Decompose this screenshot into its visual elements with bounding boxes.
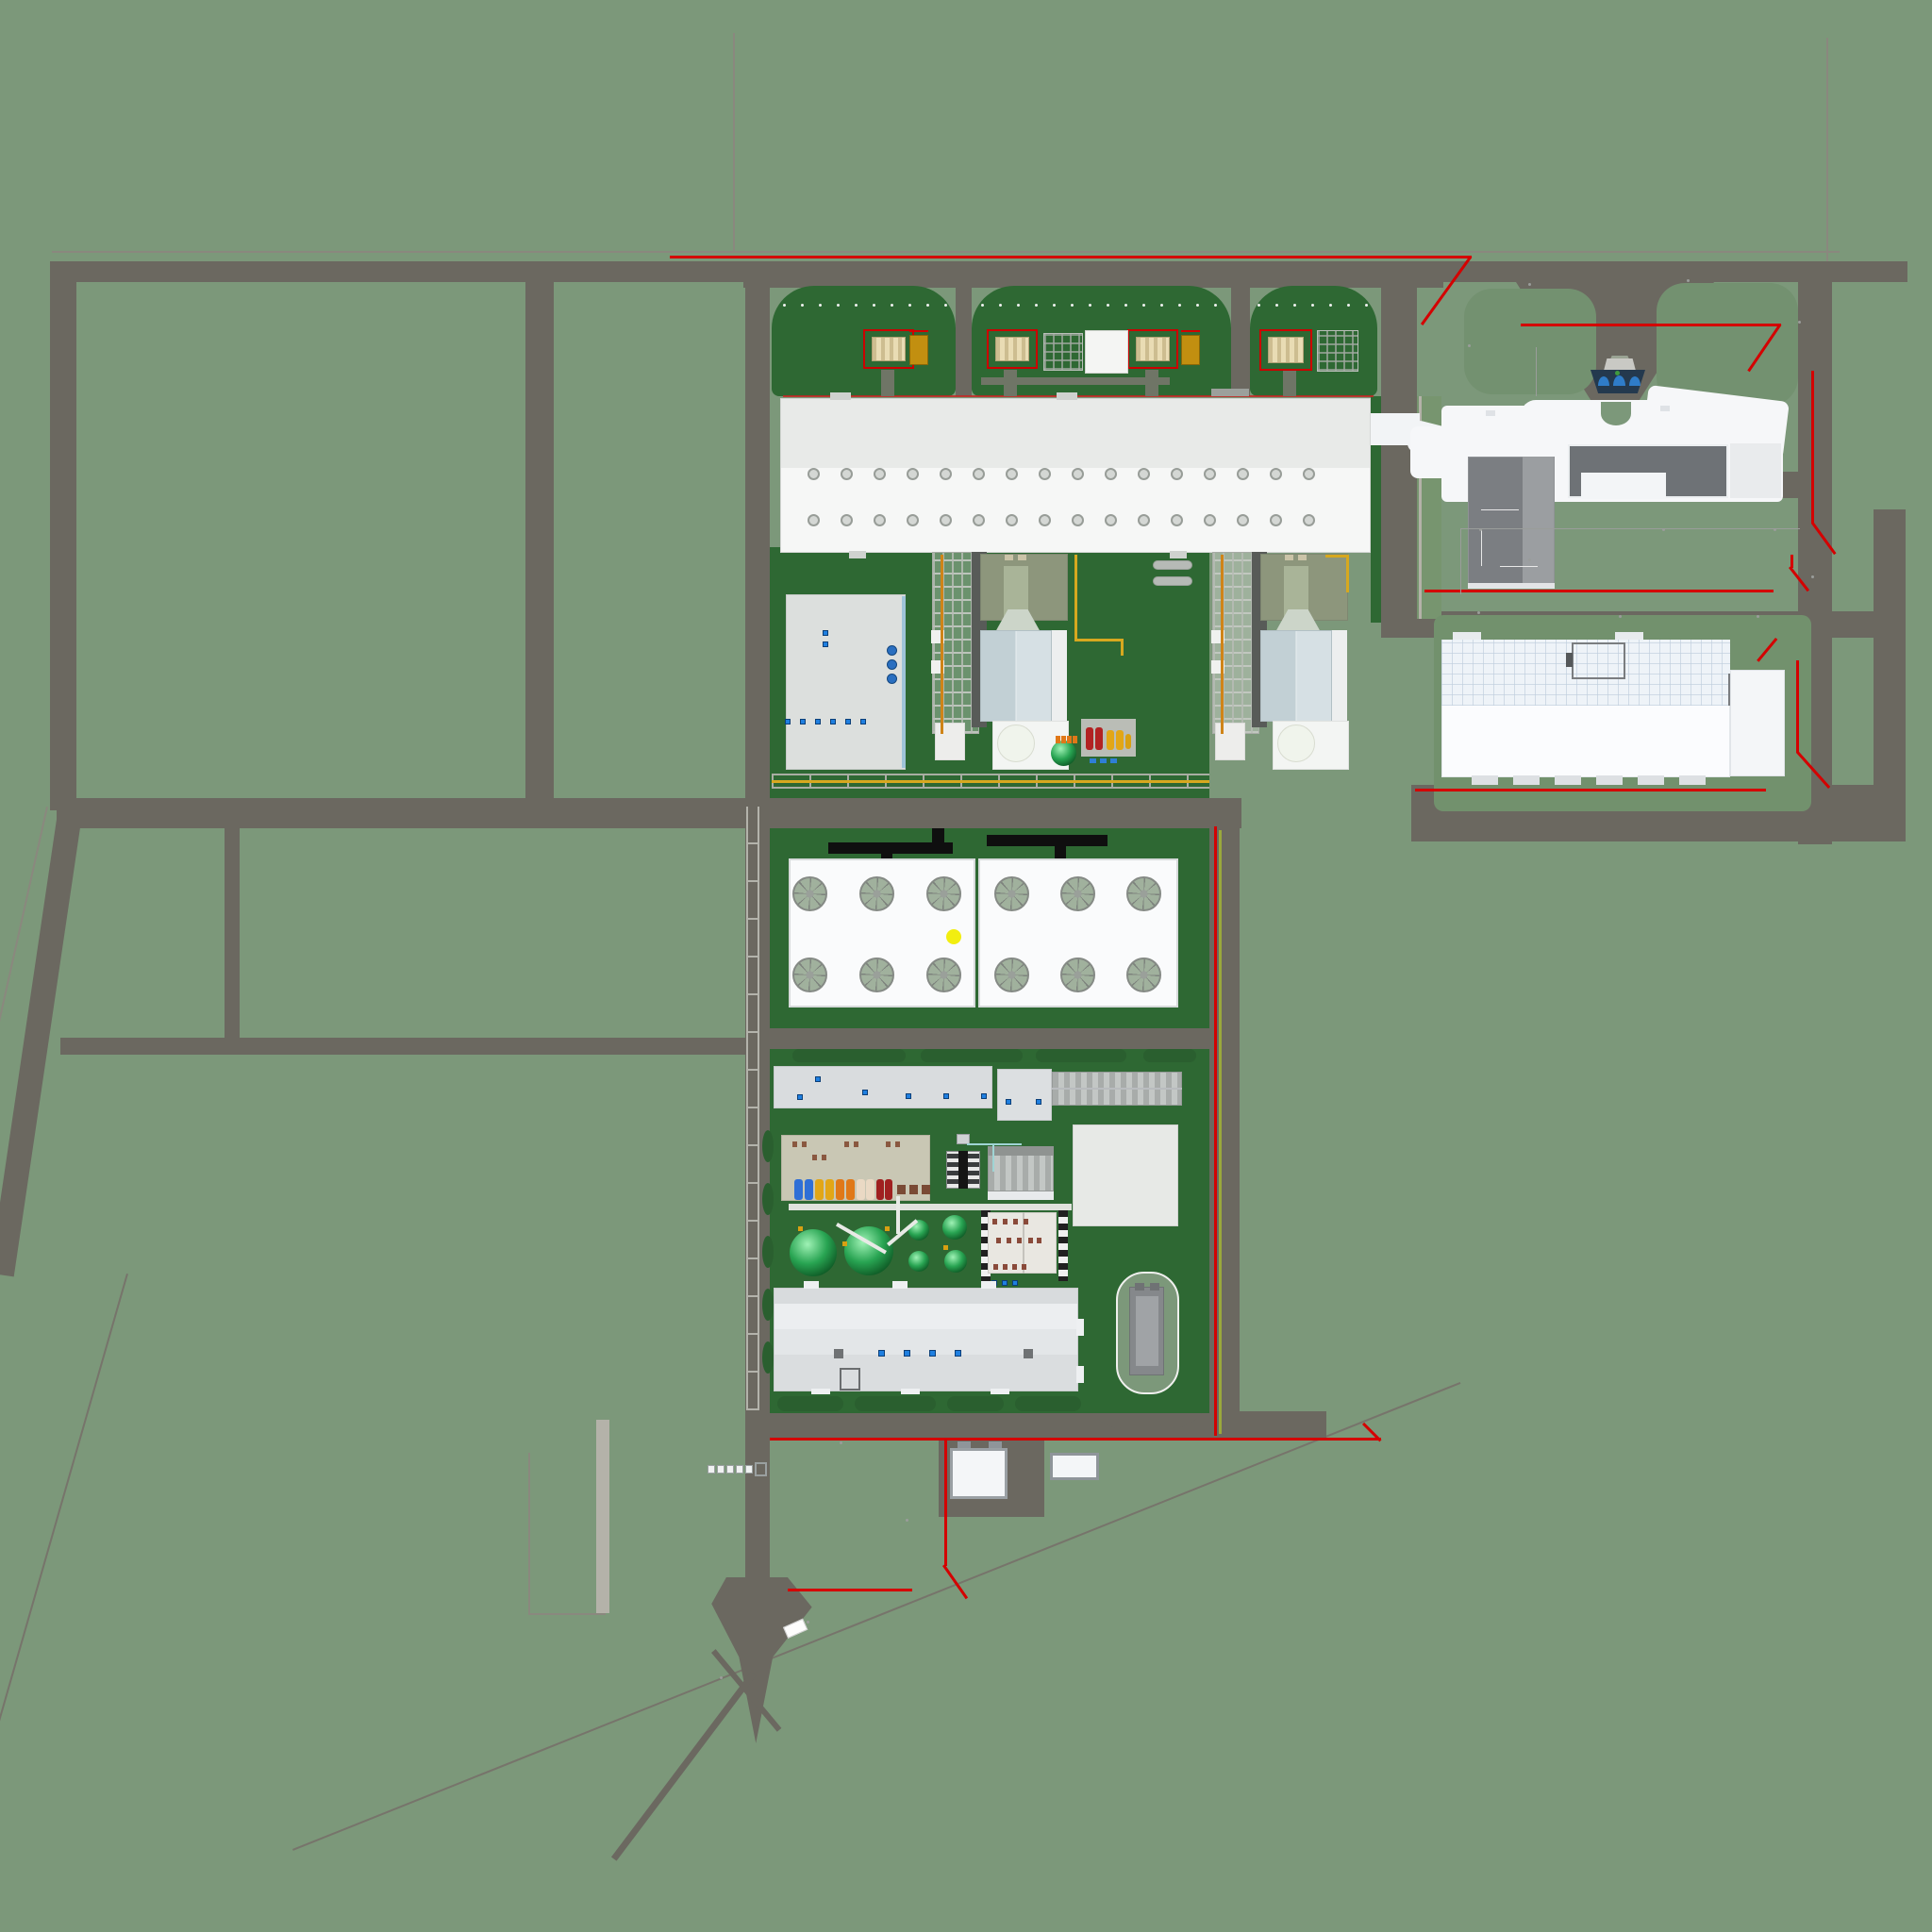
admin-roof-line bbox=[1481, 528, 1482, 566]
post-brown bbox=[1028, 1238, 1033, 1243]
admin-roof-line bbox=[1500, 566, 1538, 567]
switchgear-lattice bbox=[1317, 330, 1358, 372]
fence-red-warehouse-east bbox=[1796, 660, 1799, 753]
bollard-row-bay2 bbox=[1089, 304, 1091, 307]
sphere-tank-green bbox=[1051, 741, 1076, 766]
tank-amber bbox=[1116, 730, 1124, 750]
bin-brown bbox=[909, 1185, 918, 1194]
admin-arch-opening bbox=[1601, 402, 1631, 425]
turbine-hall-roof-tab bbox=[830, 392, 851, 400]
bin-brown bbox=[922, 1185, 930, 1194]
roof-vent bbox=[1072, 514, 1084, 526]
sphere-tank-blue bbox=[887, 645, 897, 656]
fence-red-south-inner bbox=[944, 1438, 947, 1566]
pipe-orange bbox=[941, 555, 943, 734]
roof-dot-blue bbox=[860, 719, 866, 724]
pipe-yellow bbox=[1325, 555, 1348, 558]
sphere-tank-blue bbox=[887, 659, 897, 670]
lamp-post bbox=[1468, 344, 1471, 347]
tank-red bbox=[1095, 727, 1103, 750]
roof-tab bbox=[991, 1389, 1009, 1394]
post-brown bbox=[992, 1219, 997, 1224]
lamp-post bbox=[1528, 558, 1531, 561]
roof-vent bbox=[1006, 468, 1018, 480]
path-light-south bbox=[596, 1420, 609, 1613]
post-brown bbox=[854, 1141, 858, 1147]
post-brown bbox=[1007, 1238, 1011, 1243]
roof-vent bbox=[907, 468, 919, 480]
roof-dot-blue bbox=[815, 1076, 821, 1082]
path-white bbox=[789, 1204, 1072, 1210]
roof-vent bbox=[1039, 468, 1051, 480]
bollard-row-bay2 bbox=[981, 304, 984, 307]
utility-line-top-center bbox=[733, 33, 735, 253]
unit2-round-tank bbox=[1277, 724, 1315, 762]
admin-courtyard bbox=[1581, 473, 1666, 499]
roof-dot-blue bbox=[800, 719, 806, 724]
bollard-row-bay2 bbox=[1124, 304, 1127, 307]
roof-dot-blue bbox=[815, 719, 821, 724]
gate-cell bbox=[736, 1465, 743, 1474]
tank-dark-red bbox=[885, 1179, 892, 1200]
roof-dot-blue bbox=[981, 1093, 987, 1099]
roof-tab bbox=[1076, 1319, 1084, 1336]
roof-dot-blue bbox=[797, 1094, 803, 1100]
bollard-row-bay3 bbox=[1257, 304, 1260, 307]
oil-tank-gold bbox=[1181, 335, 1200, 365]
post-brown bbox=[1013, 1219, 1018, 1224]
site-plan-canvas bbox=[0, 0, 1932, 1932]
lamp-post bbox=[1477, 611, 1480, 614]
boundary-line-west-inner bbox=[0, 1274, 128, 1851]
acc-fan bbox=[792, 958, 827, 992]
fence-line-top bbox=[52, 251, 1840, 253]
fence-red-east bbox=[1811, 371, 1814, 524]
roof-dot-blue bbox=[1012, 1280, 1018, 1286]
warehouse-dock-tab bbox=[1472, 775, 1498, 785]
roof-vent bbox=[1204, 514, 1216, 526]
pipe-orange bbox=[1221, 555, 1224, 734]
lamp-post bbox=[1528, 283, 1531, 286]
roof-tab-dark bbox=[1150, 1283, 1159, 1291]
bollard-row-bay3 bbox=[1347, 304, 1350, 307]
bollard-row-bay2 bbox=[1053, 304, 1056, 307]
roof-dot-blue bbox=[1006, 1099, 1011, 1105]
acc-fan bbox=[926, 958, 961, 992]
building-workshop-main bbox=[774, 1288, 1078, 1391]
tank-amber-small bbox=[1125, 734, 1131, 749]
pipe-elbow-yellow bbox=[842, 1241, 847, 1246]
transformer-unit bbox=[1268, 337, 1304, 363]
turbine-hall-roof-tab bbox=[1211, 389, 1249, 396]
walkway-white bbox=[896, 1196, 900, 1234]
building-t-annex bbox=[997, 1069, 1052, 1121]
roof-dot-blue bbox=[904, 1350, 910, 1357]
digester-sphere-large bbox=[790, 1229, 837, 1276]
bollard-row-bay1 bbox=[855, 304, 858, 307]
lamp-post bbox=[840, 1441, 842, 1444]
roof-vent bbox=[1303, 514, 1315, 526]
building-small-south bbox=[1050, 1453, 1099, 1480]
roof-dot-blue bbox=[929, 1350, 936, 1357]
roof-vent bbox=[1270, 468, 1282, 480]
admin-east-block bbox=[1730, 443, 1781, 498]
transformer-unit bbox=[872, 337, 906, 361]
field-line-vertical bbox=[528, 1453, 530, 1615]
building-long-east-line bbox=[1052, 1088, 1182, 1090]
steam-duct-black bbox=[987, 835, 1108, 846]
admin-entrance-canopy bbox=[1521, 400, 1662, 432]
building-oval-gray-inner bbox=[1136, 1296, 1158, 1366]
oil-tank-gold bbox=[909, 335, 928, 365]
fence-red-north bbox=[670, 256, 1472, 258]
transformer-unit bbox=[1136, 337, 1170, 361]
bollard-row-bay1 bbox=[819, 304, 822, 307]
building-gatehouse-south bbox=[950, 1448, 1008, 1499]
fence-red-south-bottom bbox=[788, 1589, 912, 1591]
hedge-acc-south bbox=[921, 1049, 1023, 1062]
pavement-gap-1 bbox=[956, 286, 972, 396]
roof-vent bbox=[973, 514, 985, 526]
roof-dot-blue bbox=[878, 1350, 885, 1357]
post-brown bbox=[1017, 1238, 1022, 1243]
bollard-row-bay1 bbox=[908, 304, 911, 307]
roof-dot-blue bbox=[955, 1350, 961, 1357]
building-long-north bbox=[774, 1066, 992, 1108]
roof-tab bbox=[1076, 1366, 1084, 1383]
post-brown bbox=[1022, 1264, 1026, 1270]
bollard-row-bay1 bbox=[891, 304, 893, 307]
cable-trench bbox=[1283, 370, 1296, 396]
roof-dot-blue bbox=[862, 1090, 868, 1095]
fence-red-ne bbox=[1521, 324, 1781, 326]
mini-tank-orange bbox=[1061, 736, 1066, 743]
bollard-row-bay1 bbox=[944, 304, 947, 307]
boundary-line-southeast bbox=[292, 1382, 1460, 1851]
roof-vent bbox=[808, 468, 820, 480]
warehouse-room-outline bbox=[1572, 642, 1625, 679]
post-brown bbox=[993, 1264, 998, 1270]
acc-fan bbox=[859, 876, 894, 911]
hedge-spine bbox=[762, 1130, 774, 1162]
transformer-unit bbox=[995, 337, 1029, 361]
pad-concrete-large bbox=[1073, 1124, 1178, 1226]
turbine-hall-roof-tab bbox=[1057, 392, 1077, 400]
roof-dot-blue bbox=[845, 719, 851, 724]
marker-blue bbox=[1110, 758, 1117, 763]
post-brown bbox=[812, 1155, 817, 1160]
pipe-lightblue bbox=[992, 1145, 994, 1172]
hedge-acc-south bbox=[1036, 1049, 1126, 1062]
condensate-tank bbox=[1153, 576, 1192, 586]
roof-vent bbox=[940, 468, 952, 480]
roof-vent bbox=[1105, 514, 1117, 526]
acc-fan bbox=[792, 876, 827, 911]
roof-vent bbox=[874, 514, 886, 526]
roof-vent bbox=[1105, 468, 1117, 480]
warehouse-room-tab bbox=[1566, 653, 1573, 667]
lamp-post bbox=[1757, 615, 1759, 618]
hedge-workshop-south bbox=[1015, 1396, 1081, 1411]
roof-tab bbox=[981, 1281, 996, 1289]
building-electrical-core bbox=[958, 1151, 968, 1189]
unit1-boiler-tab bbox=[1018, 555, 1026, 560]
tank-amber bbox=[815, 1179, 824, 1200]
lamp-post bbox=[906, 1519, 908, 1522]
gate-canopy-mid bbox=[1604, 358, 1636, 371]
bollard-row-bay2 bbox=[1178, 304, 1181, 307]
roof-vent bbox=[841, 468, 853, 480]
road-top bbox=[52, 261, 1907, 282]
tank-blue bbox=[805, 1179, 813, 1200]
unit1-hrsg-strip bbox=[1052, 630, 1067, 722]
unit2-aux-building bbox=[1215, 723, 1245, 760]
roof-tab bbox=[989, 1441, 1002, 1448]
marker-olive-plant-east bbox=[1219, 830, 1222, 1434]
road-field-divider bbox=[225, 824, 240, 1041]
roof-vent bbox=[1204, 468, 1216, 480]
roof-vent bbox=[1237, 514, 1249, 526]
acc-fan bbox=[1126, 876, 1161, 911]
roof-room-outline bbox=[840, 1368, 860, 1391]
post-brown bbox=[792, 1141, 797, 1147]
admin-base-edge bbox=[1468, 583, 1555, 589]
mini-tank-orange bbox=[1056, 736, 1060, 743]
roof-tab-dark bbox=[1135, 1283, 1144, 1291]
post-brown bbox=[844, 1141, 849, 1147]
gate-cell-box bbox=[755, 1462, 767, 1476]
bollard-row-bay2 bbox=[1017, 304, 1020, 307]
tank-blue bbox=[794, 1179, 803, 1200]
bollard-row-bay2 bbox=[999, 304, 1002, 307]
road-acc-south bbox=[745, 1028, 1209, 1051]
bollard-row-bay2 bbox=[1107, 304, 1109, 307]
fence-red-tick bbox=[909, 330, 928, 332]
warehouse-north-tab bbox=[1615, 632, 1643, 640]
roof-vent bbox=[841, 514, 853, 526]
bollard-row-bay3 bbox=[1311, 304, 1314, 307]
mini-tank-orange bbox=[1067, 736, 1072, 743]
pipe-yellow bbox=[1074, 639, 1124, 641]
roof-dot-blue bbox=[906, 1093, 911, 1099]
gate-cell bbox=[745, 1465, 753, 1474]
road-east-ring-b bbox=[1874, 509, 1906, 841]
fence-red-tick bbox=[1181, 330, 1200, 332]
admin-roof-line bbox=[1481, 509, 1519, 510]
acc-fan bbox=[859, 958, 894, 992]
tank-amber bbox=[825, 1179, 834, 1200]
building-engine-hall-apron bbox=[988, 1191, 1054, 1200]
unit2-hrsg-strip bbox=[1332, 630, 1347, 722]
unit1-aux-building bbox=[935, 723, 965, 760]
post-brown bbox=[996, 1238, 1001, 1243]
bollard-row-bay1 bbox=[801, 304, 804, 307]
bollard-row-bay1 bbox=[783, 304, 786, 307]
roof-vent bbox=[1303, 468, 1315, 480]
unit1-hrsg-building bbox=[980, 630, 1052, 722]
roof-hatch-gray bbox=[834, 1349, 843, 1358]
bollard-row-bay2 bbox=[1160, 304, 1163, 307]
road-west-vertical bbox=[50, 261, 76, 810]
pipe-elbow-yellow bbox=[885, 1226, 890, 1231]
roof-dot-blue bbox=[785, 719, 791, 724]
roof-vent bbox=[1138, 514, 1150, 526]
gate-roof-dot-green bbox=[1615, 371, 1620, 375]
tank-red bbox=[1086, 727, 1093, 750]
hedge-workshop-south bbox=[777, 1396, 843, 1411]
hedge-acc-south bbox=[792, 1049, 906, 1062]
lamp-post bbox=[1798, 321, 1801, 324]
bollard-row-bay2 bbox=[1196, 304, 1199, 307]
mini-tank-orange bbox=[1073, 736, 1077, 743]
pavement-gap-2 bbox=[1231, 286, 1250, 396]
warehouse-north-tab bbox=[1453, 632, 1481, 640]
field-line-horizontal bbox=[528, 1613, 606, 1615]
cable-trench-horizontal bbox=[981, 377, 1170, 385]
fence-wire bbox=[1460, 528, 1800, 529]
digester-sphere-small bbox=[944, 1250, 967, 1273]
roof-vent bbox=[1138, 468, 1150, 480]
marker-blue bbox=[1090, 758, 1096, 763]
switchyard-structure-white bbox=[1085, 330, 1128, 374]
bollard-row-bay3 bbox=[1275, 304, 1278, 307]
bollard-row-bay1 bbox=[873, 304, 875, 307]
turbine-hall-roof-tab bbox=[849, 551, 866, 558]
lamp-post bbox=[807, 1621, 809, 1624]
post-brown bbox=[1003, 1264, 1008, 1270]
roof-vent bbox=[973, 468, 985, 480]
sphere-tank-blue bbox=[887, 674, 897, 684]
hedge-spine bbox=[762, 1183, 774, 1215]
hedge-workshop-south bbox=[947, 1396, 1004, 1411]
hedge-spine bbox=[762, 1341, 774, 1374]
roof-tab bbox=[811, 1389, 830, 1394]
roof-vent bbox=[874, 468, 886, 480]
bollard-row-bay2 bbox=[1071, 304, 1074, 307]
hedge-workshop-south bbox=[855, 1396, 936, 1411]
post-brown bbox=[1003, 1219, 1008, 1224]
post-brown bbox=[1037, 1238, 1041, 1243]
condensate-tank bbox=[1153, 560, 1192, 570]
unit2-hrsg-building bbox=[1260, 630, 1332, 722]
steam-duct-black bbox=[932, 828, 944, 844]
bollard-row-bay2 bbox=[1035, 304, 1038, 307]
gate-cell bbox=[708, 1465, 715, 1474]
warehouse-annex bbox=[1730, 670, 1785, 776]
cable-trench bbox=[881, 370, 894, 396]
roof-vent bbox=[1270, 514, 1282, 526]
roof-vent bbox=[1171, 468, 1183, 480]
unit2-boiler-tab bbox=[1298, 555, 1307, 560]
pipe-yellow-rack bbox=[772, 780, 1209, 783]
warehouse-dock-tab bbox=[1596, 775, 1623, 785]
post-brown bbox=[1024, 1219, 1028, 1224]
lamp-post bbox=[1687, 279, 1690, 282]
tank-cream bbox=[857, 1179, 865, 1200]
bin-brown bbox=[897, 1185, 906, 1194]
roof-vent bbox=[940, 514, 952, 526]
roof-vent bbox=[1072, 468, 1084, 480]
unit2-boiler-tab bbox=[1285, 555, 1293, 560]
post-brown bbox=[822, 1155, 826, 1160]
roof-tab bbox=[892, 1281, 908, 1289]
unit1-round-tank bbox=[997, 724, 1035, 762]
bollard-row-bay2 bbox=[1214, 304, 1217, 307]
roof-tab bbox=[958, 1441, 971, 1448]
roof-hatch-gray bbox=[1024, 1349, 1033, 1358]
switchgear-lattice bbox=[1043, 333, 1083, 371]
bollard-row-bay1 bbox=[837, 304, 840, 307]
road-field-vertical bbox=[525, 261, 554, 818]
lawn-admin-north-2 bbox=[1657, 283, 1798, 406]
fence-red-admin-south bbox=[1424, 590, 1774, 592]
warehouse-dock-tab bbox=[1513, 775, 1540, 785]
roof-vent bbox=[1171, 514, 1183, 526]
walkway-checker bbox=[1058, 1210, 1068, 1281]
roof-tab bbox=[804, 1281, 819, 1289]
roof-vent bbox=[1006, 514, 1018, 526]
gate-cell bbox=[717, 1465, 724, 1474]
pipe-elbow-yellow bbox=[798, 1226, 803, 1231]
roof-vent bbox=[1039, 514, 1051, 526]
roof-vent bbox=[808, 514, 820, 526]
lamp-post bbox=[1811, 575, 1814, 578]
post-brown bbox=[886, 1141, 891, 1147]
bollard-row-bay3 bbox=[1293, 304, 1296, 307]
roof-dot-blue bbox=[823, 630, 828, 636]
warehouse-dock-tab bbox=[1679, 775, 1706, 785]
acc-fan bbox=[994, 876, 1029, 911]
building-engine-hall-top bbox=[988, 1146, 1054, 1156]
road-track-southeast bbox=[611, 1672, 757, 1861]
bollard-row-bay3 bbox=[1329, 304, 1332, 307]
utility-line-top-right bbox=[1826, 38, 1828, 261]
post-brown bbox=[1012, 1264, 1017, 1270]
acc-fan bbox=[1126, 958, 1161, 992]
building-water-treatment-edge bbox=[902, 596, 906, 768]
turbine-hall-roof-tab bbox=[1170, 551, 1187, 558]
fence-red-warehouse-south bbox=[1415, 789, 1766, 791]
digester-sphere-small bbox=[942, 1215, 967, 1240]
lawn-admin-north-1 bbox=[1464, 289, 1596, 394]
bollard-row-bay2 bbox=[1142, 304, 1145, 307]
fence-red-plant-south bbox=[770, 1438, 1381, 1441]
warehouse-dock-tab bbox=[1638, 775, 1664, 785]
warehouse-dock-tab bbox=[1555, 775, 1581, 785]
pipe-yellow bbox=[1074, 555, 1077, 641]
acc-fan bbox=[994, 958, 1029, 992]
road-lower-horizontal bbox=[60, 1038, 770, 1055]
pipe-yellow bbox=[1121, 639, 1124, 656]
roof-tab bbox=[901, 1389, 920, 1394]
digester-sphere-small bbox=[908, 1251, 929, 1272]
tank-dark-red bbox=[876, 1179, 884, 1200]
unit1-boiler-tab bbox=[1005, 555, 1013, 560]
admin-roof-vent bbox=[1660, 406, 1670, 411]
pipe-elbow-yellow bbox=[943, 1245, 948, 1250]
roof-dot-blue bbox=[823, 641, 828, 647]
lamp-post bbox=[1619, 615, 1622, 618]
tank-orange bbox=[846, 1179, 855, 1200]
roof-vent bbox=[1237, 468, 1249, 480]
post-brown bbox=[895, 1141, 900, 1147]
roof-vent bbox=[907, 514, 919, 526]
hedge-spine bbox=[762, 1289, 774, 1321]
bollard-row-bay3 bbox=[1365, 304, 1368, 307]
acc-fan bbox=[1060, 876, 1095, 911]
pipe-yellow bbox=[1346, 555, 1349, 592]
gate-cell bbox=[726, 1465, 734, 1474]
